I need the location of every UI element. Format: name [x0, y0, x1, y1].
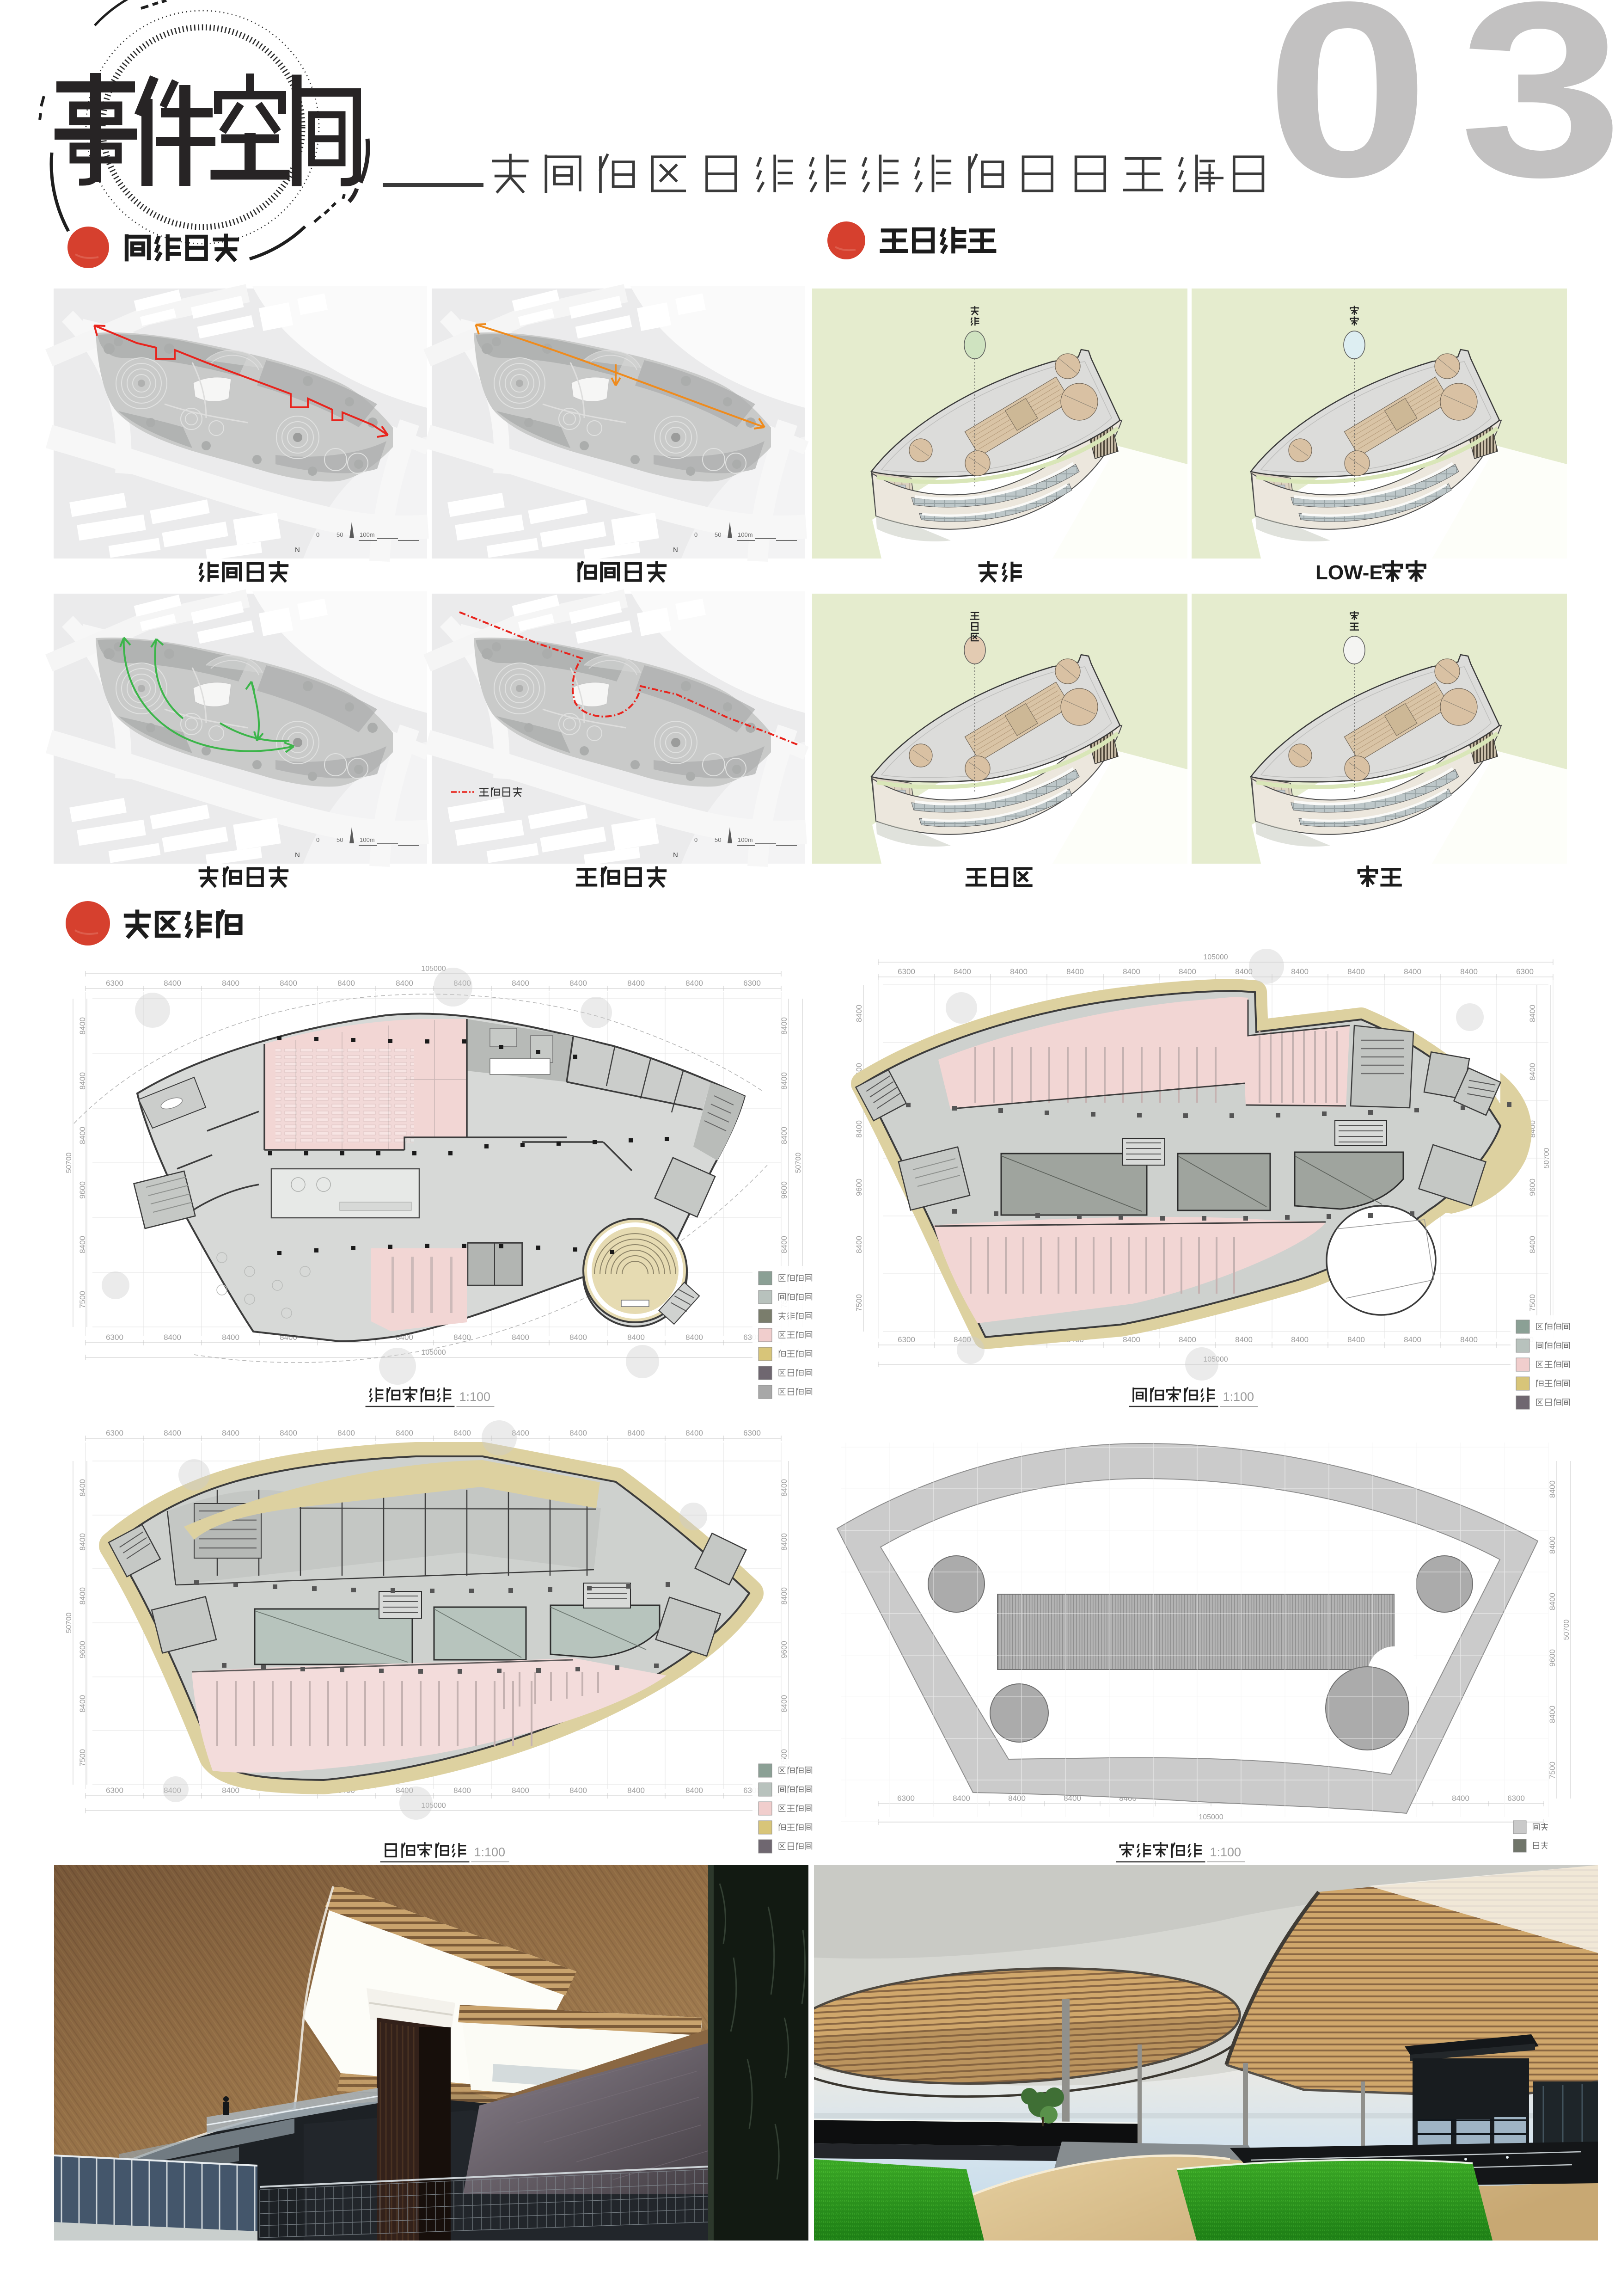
svg-text:8400: 8400 [337, 1429, 355, 1437]
svg-text:8400: 8400 [1179, 967, 1196, 976]
svg-text:8400: 8400 [396, 979, 413, 988]
svg-text:8400: 8400 [685, 1429, 703, 1437]
svg-text:8400: 8400 [280, 979, 297, 988]
svg-text:8400: 8400 [222, 979, 239, 988]
svg-text:8400: 8400 [1528, 1063, 1537, 1080]
svg-text:8400: 8400 [1460, 967, 1478, 976]
svg-text:8400: 8400 [1548, 1480, 1557, 1498]
svg-text:8400: 8400 [1347, 967, 1365, 976]
svg-text:8400: 8400 [855, 1120, 863, 1138]
svg-text:8400: 8400 [1123, 967, 1140, 976]
svg-text:8400: 8400 [569, 1786, 587, 1795]
svg-text:LOW-E: LOW-E [1315, 561, 1383, 584]
svg-text:8400: 8400 [1548, 1593, 1557, 1610]
svg-text:8400: 8400 [954, 967, 971, 976]
svg-text:8400: 8400 [1460, 1335, 1478, 1344]
svg-text:8400: 8400 [453, 1429, 471, 1437]
svg-text:8400: 8400 [685, 1333, 703, 1342]
svg-text:8400: 8400 [1548, 1536, 1557, 1554]
svg-text:N: N [295, 546, 300, 554]
svg-text:8400: 8400 [337, 979, 355, 988]
svg-text:8400: 8400 [1179, 1335, 1196, 1344]
svg-text:8400: 8400 [512, 979, 529, 988]
svg-text:8400: 8400 [1404, 1335, 1421, 1344]
svg-text:8400: 8400 [1528, 1236, 1537, 1253]
svg-text:9600: 9600 [1548, 1649, 1557, 1667]
svg-text:8400: 8400 [569, 1429, 587, 1437]
svg-text:6300: 6300 [106, 1333, 123, 1342]
svg-text:1:100: 1:100 [459, 1390, 490, 1404]
svg-text:8400: 8400 [453, 1786, 471, 1795]
svg-text:N: N [673, 851, 678, 859]
svg-text:8400: 8400 [855, 1236, 863, 1253]
svg-text:8400: 8400 [627, 979, 645, 988]
svg-text:50700: 50700 [65, 1153, 73, 1173]
svg-text:8400: 8400 [685, 1786, 703, 1795]
svg-text:9600: 9600 [855, 1179, 863, 1196]
svg-text:N: N [295, 851, 300, 859]
svg-text:105000: 105000 [1199, 1813, 1223, 1821]
svg-text:100m: 100m [360, 836, 375, 843]
svg-text:8400: 8400 [685, 979, 703, 988]
svg-text:8400: 8400 [1235, 1335, 1253, 1344]
svg-text:8400: 8400 [396, 1429, 413, 1437]
svg-text:8400: 8400 [627, 1786, 645, 1795]
svg-text:6300: 6300 [1507, 1794, 1525, 1803]
svg-text:9600: 9600 [1528, 1179, 1537, 1196]
svg-text:6300: 6300 [106, 979, 123, 988]
svg-text:8400: 8400 [1548, 1706, 1557, 1723]
svg-text:8400: 8400 [1291, 1335, 1309, 1344]
svg-text:6300: 6300 [743, 1429, 761, 1437]
svg-text:50: 50 [715, 531, 721, 538]
svg-text:50700: 50700 [65, 1613, 73, 1633]
svg-text:50: 50 [336, 531, 343, 538]
svg-text:8400: 8400 [280, 1429, 297, 1437]
svg-text:105000: 105000 [1203, 953, 1228, 961]
svg-text:50: 50 [336, 836, 343, 843]
svg-text:8400: 8400 [164, 1429, 181, 1437]
svg-text:50700: 50700 [1563, 1620, 1571, 1640]
svg-text:03: 03 [1266, 0, 1621, 229]
svg-text:8400: 8400 [569, 979, 587, 988]
svg-text:1:100: 1:100 [1223, 1390, 1254, 1404]
svg-text:6300: 6300 [1516, 967, 1534, 976]
svg-text:6300: 6300 [106, 1786, 123, 1795]
svg-text:8400: 8400 [569, 1333, 587, 1342]
svg-text:6300: 6300 [106, 1429, 123, 1437]
svg-text:8400: 8400 [222, 1786, 239, 1795]
svg-text:N: N [673, 546, 678, 554]
svg-text:50: 50 [715, 836, 721, 843]
svg-text:8400: 8400 [1528, 1005, 1537, 1022]
svg-text:0: 0 [316, 531, 319, 538]
svg-text:100m: 100m [738, 531, 753, 538]
svg-text:8400: 8400 [512, 1786, 529, 1795]
svg-text:8400: 8400 [453, 1333, 471, 1342]
svg-text:0: 0 [316, 836, 319, 843]
svg-text:105000: 105000 [421, 1349, 446, 1357]
svg-text:8400: 8400 [222, 1333, 239, 1342]
svg-text:8400: 8400 [627, 1429, 645, 1437]
svg-text:100m: 100m [360, 531, 375, 538]
svg-text:7500: 7500 [855, 1294, 863, 1312]
svg-text:8400: 8400 [1404, 967, 1421, 976]
svg-text:6300: 6300 [743, 979, 761, 988]
svg-text:8400: 8400 [164, 979, 181, 988]
svg-text:6300: 6300 [897, 1794, 915, 1803]
svg-text:0: 0 [694, 836, 697, 843]
svg-text:8400: 8400 [222, 1429, 239, 1437]
svg-text:6300: 6300 [898, 967, 915, 976]
svg-text:1:100: 1:100 [1210, 1845, 1241, 1859]
svg-text:8400: 8400 [953, 1794, 970, 1803]
svg-text:1:100: 1:100 [474, 1845, 505, 1859]
svg-text:8400: 8400 [855, 1005, 863, 1022]
svg-text:8400: 8400 [1010, 967, 1028, 976]
svg-text:8400: 8400 [627, 1333, 645, 1342]
svg-text:100m: 100m [738, 836, 753, 843]
svg-text:8400: 8400 [1291, 967, 1309, 976]
svg-text:8400: 8400 [164, 1333, 181, 1342]
svg-text:8400: 8400 [512, 1333, 529, 1342]
svg-text:7500: 7500 [1548, 1762, 1557, 1779]
svg-text:7500: 7500 [1528, 1294, 1537, 1312]
svg-text:50700: 50700 [795, 1153, 802, 1173]
svg-text:8400: 8400 [1347, 1335, 1365, 1344]
svg-text:8400: 8400 [1066, 967, 1084, 976]
svg-text:6300: 6300 [898, 1335, 915, 1344]
svg-text:0: 0 [694, 531, 697, 538]
svg-text:8400: 8400 [1008, 1794, 1026, 1803]
svg-text:8400: 8400 [1123, 1335, 1140, 1344]
